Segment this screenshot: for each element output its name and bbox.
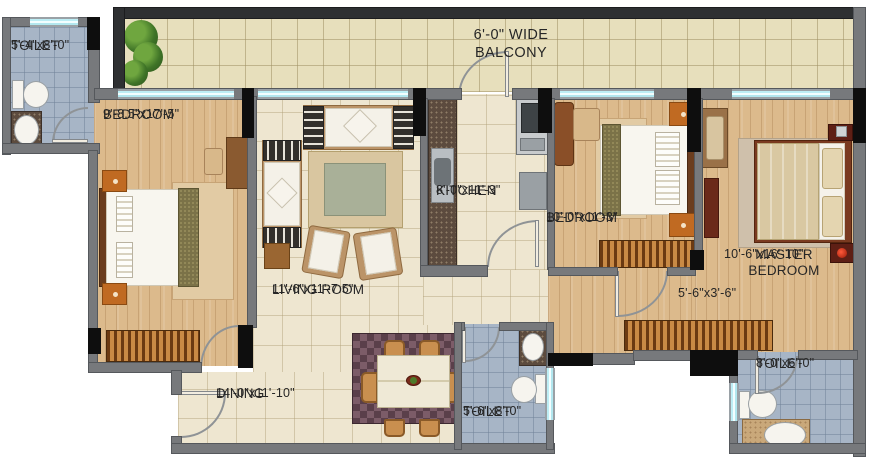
bedroom2-nightstand [669, 213, 696, 237]
window [258, 89, 408, 99]
master-bed-blanket [757, 143, 819, 240]
door-leaf-toilet-bc [462, 327, 466, 363]
jamb-hall-south [548, 353, 593, 366]
wall-toilet-tl-left [2, 17, 11, 155]
wall-balcony-left [113, 7, 125, 91]
jamb-toilet-br-corner [690, 350, 738, 376]
jamb-kitchen-east [538, 88, 552, 133]
jamb-bedroom1-north [242, 88, 254, 138]
wall-dining-west-upper [171, 370, 182, 395]
bedroom2-pillow [655, 170, 680, 205]
window [732, 89, 830, 99]
bedroom2-bed-runner [602, 124, 621, 216]
window [118, 89, 234, 99]
bedroom2-pillow [655, 132, 680, 167]
wall-toilet-bc-top-right [499, 322, 549, 331]
jamb-wall-end-passage [690, 250, 704, 270]
toilet-tl-basin [14, 115, 39, 145]
toilet-bc-sink [522, 333, 544, 361]
wall-balcony-top [113, 7, 860, 19]
wall-bedroom1-south [88, 362, 202, 373]
master-bench-cushion [706, 116, 724, 160]
wall-kitchen-south [420, 265, 488, 277]
floor-plan: 6'-0" WIDE BALCONY TOILET 5'-4"x8'-0" BE… [0, 0, 870, 460]
jamb-master-right [853, 88, 866, 143]
kitchen-sink-basin [434, 158, 451, 186]
room-dims: 5'-6"x8'-0" [463, 404, 521, 419]
sofa-top-armrest [393, 106, 414, 149]
master-pillow [822, 148, 843, 189]
window [729, 383, 739, 421]
window [545, 368, 555, 420]
kitchen-stove-oven [520, 138, 545, 151]
room-dims: 9'-8.5"x17'-5" [103, 107, 179, 122]
window [560, 89, 654, 99]
bedroom1-nightstand [102, 283, 127, 305]
bedroom1-wardrobe [106, 330, 200, 362]
room-dims: 14'-0"x11'-10" [216, 386, 295, 401]
room-dims: 11'-6"x11'-7.5" [272, 282, 354, 297]
jamb-toilet-tl [87, 17, 100, 50]
wall-toilet-br-top-left [735, 350, 758, 360]
bedroom1-pillow [116, 196, 133, 232]
toilet-br-wc-bowl [748, 390, 777, 418]
bedroom2-bench [573, 108, 600, 141]
balcony-label-text: 6'-0" WIDE BALCONY [451, 27, 571, 62]
coffee-table-top [324, 163, 386, 216]
armchair-cushion [360, 232, 397, 275]
wall-outer-right [853, 7, 866, 457]
jamb-bedroom2-master [687, 88, 701, 152]
toilet-bc-wc-bowl [511, 376, 537, 403]
dining-chair [419, 419, 440, 437]
door-leaf-bedroom2 [615, 271, 619, 317]
dining-centerpiece-greens [410, 377, 417, 384]
jamb-bedroom1-west [88, 328, 101, 354]
sofa-left-armrest [263, 140, 301, 161]
sofa-top-armrest [303, 106, 324, 149]
bedroom1-pillow [116, 242, 133, 278]
master-wardrobe [624, 320, 773, 351]
side-table [264, 243, 290, 269]
bedroom1-nightstand [102, 170, 127, 192]
dining-chair [384, 419, 405, 437]
wall-toilet-tl-bottom [2, 143, 100, 154]
master-nightstand-lamp [836, 126, 847, 137]
master-dresser [704, 178, 719, 238]
wall-passage-north-left [548, 267, 618, 276]
bedroom1-chair [204, 148, 223, 175]
plant-icon [122, 60, 148, 86]
room-dims: 8'-0"x6'-0" [756, 356, 814, 371]
room-dims: 5'-4"x8'-0" [11, 38, 69, 53]
wall-toilet-bc-west [454, 322, 462, 450]
toilet-tl-wc-bowl [23, 81, 49, 108]
room-dims: 5'-6"x3'-6" [678, 286, 736, 301]
bedroom1-bed-runner [178, 188, 199, 287]
room-dims: 8'-0"x11'-3" [436, 183, 500, 198]
wall-toilet-br-bottom [729, 443, 866, 454]
door-leaf-kitchen [535, 220, 539, 267]
dining-chair [361, 372, 378, 403]
kitchen-counter-right [519, 172, 547, 210]
master-pillow [822, 196, 843, 237]
door-leaf-bedroom1 [238, 325, 253, 368]
bedroom2-desk [554, 102, 574, 166]
room-dims: 10'-0"x11'-3" [546, 210, 618, 225]
wall-bottom-main [171, 443, 555, 454]
jamb-kitchen-west [413, 88, 426, 136]
window [30, 17, 78, 27]
bedroom2-wardrobe [599, 240, 696, 268]
room-dims: 10'-6"x16'-10" [724, 247, 804, 262]
